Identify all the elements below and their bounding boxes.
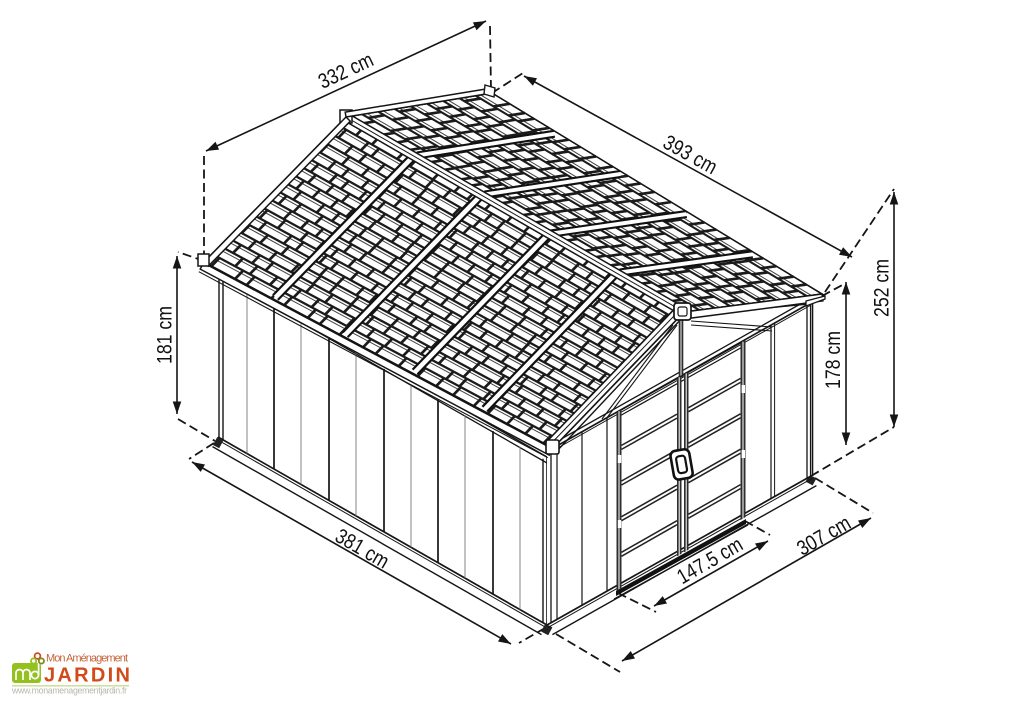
svg-text:252 cm: 252 cm <box>871 259 894 317</box>
svg-text:www.monamenagementjardin.fr: www.monamenagementjardin.fr <box>11 686 127 696</box>
svg-text:178 cm: 178 cm <box>822 331 845 389</box>
svg-text:181 cm: 181 cm <box>154 306 177 364</box>
svg-text:Mon Aménagement: Mon Aménagement <box>46 653 128 665</box>
svg-text:JARDIN: JARDIN <box>44 665 130 687</box>
